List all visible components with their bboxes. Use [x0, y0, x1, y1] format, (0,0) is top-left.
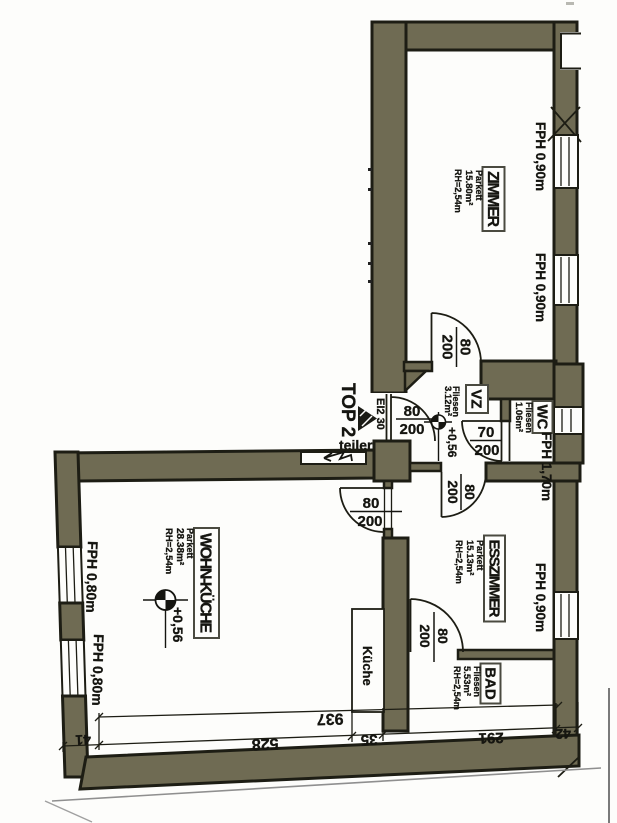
svg-text:3.12m²: 3.12m²	[442, 386, 453, 416]
svg-text:70: 70	[478, 424, 495, 441]
svg-text:FPH 0,80m: FPH 0,80m	[83, 541, 101, 613]
svg-text:FPH 0,90m: FPH 0,90m	[533, 253, 548, 322]
svg-text:937: 937	[316, 710, 343, 728]
svg-text:ESSZIMMER: ESSZIMMER	[486, 540, 503, 618]
svg-text:80: 80	[363, 495, 380, 512]
svg-text:Fliesen: Fliesen	[524, 402, 534, 433]
svg-text:RH=2,54m: RH=2,54m	[453, 169, 463, 213]
svg-text:+0,56: +0,56	[170, 607, 186, 643]
svg-text:BAD: BAD	[482, 667, 499, 700]
svg-text:FPH 1,70m: FPH 1,70m	[539, 432, 554, 501]
svg-text:80: 80	[404, 403, 421, 420]
svg-text:WOHN-KÜCHE: WOHN-KÜCHE	[197, 533, 216, 633]
svg-text:200: 200	[439, 334, 456, 359]
svg-text:200: 200	[445, 480, 461, 504]
svg-text:35: 35	[361, 731, 378, 749]
svg-text:1.06m²: 1.06m²	[513, 402, 524, 432]
svg-text:15.80m²: 15.80m²	[463, 170, 474, 205]
svg-text:528: 528	[251, 735, 278, 753]
svg-text:41: 41	[75, 732, 91, 749]
svg-text:291: 291	[478, 729, 504, 747]
svg-text:28.38m²: 28.38m²	[174, 528, 185, 566]
svg-text:15.13m²: 15.13m²	[464, 540, 475, 575]
svg-text:200: 200	[399, 421, 424, 438]
svg-text:FPH 0,80m: FPH 0,80m	[89, 634, 107, 706]
svg-text:VZ: VZ	[468, 389, 485, 408]
svg-text:Parkett: Parkett	[475, 540, 485, 571]
svg-text:80: 80	[457, 339, 474, 356]
svg-text:EI2 30: EI2 30	[374, 398, 386, 430]
svg-text:TOP 2: TOP 2	[337, 383, 358, 437]
svg-text:WC: WC	[534, 405, 551, 430]
svg-text:Parkett: Parkett	[185, 528, 195, 559]
svg-text:RH=2,54m: RH=2,54m	[452, 666, 462, 710]
svg-text:Parkett: Parkett	[474, 170, 484, 201]
svg-text:80: 80	[435, 628, 451, 644]
svg-text:80: 80	[462, 484, 478, 500]
svg-text:200: 200	[357, 513, 382, 530]
svg-text:FPH 0,90m: FPH 0,90m	[533, 122, 548, 191]
svg-text:RH=2,54m: RH=2,54m	[163, 528, 174, 574]
svg-text:ZIMMER: ZIMMER	[484, 171, 501, 227]
svg-text:FPH 0,90m: FPH 0,90m	[533, 563, 548, 632]
svg-text:RH=2,54m: RH=2,54m	[454, 540, 464, 584]
svg-text:42: 42	[555, 726, 571, 743]
svg-text:+0,56: +0,56	[445, 427, 459, 458]
svg-text:200: 200	[417, 624, 433, 648]
svg-text:Fliesen: Fliesen	[472, 666, 482, 697]
svg-text:Küche: Küche	[360, 646, 375, 686]
svg-text:200: 200	[474, 442, 499, 459]
